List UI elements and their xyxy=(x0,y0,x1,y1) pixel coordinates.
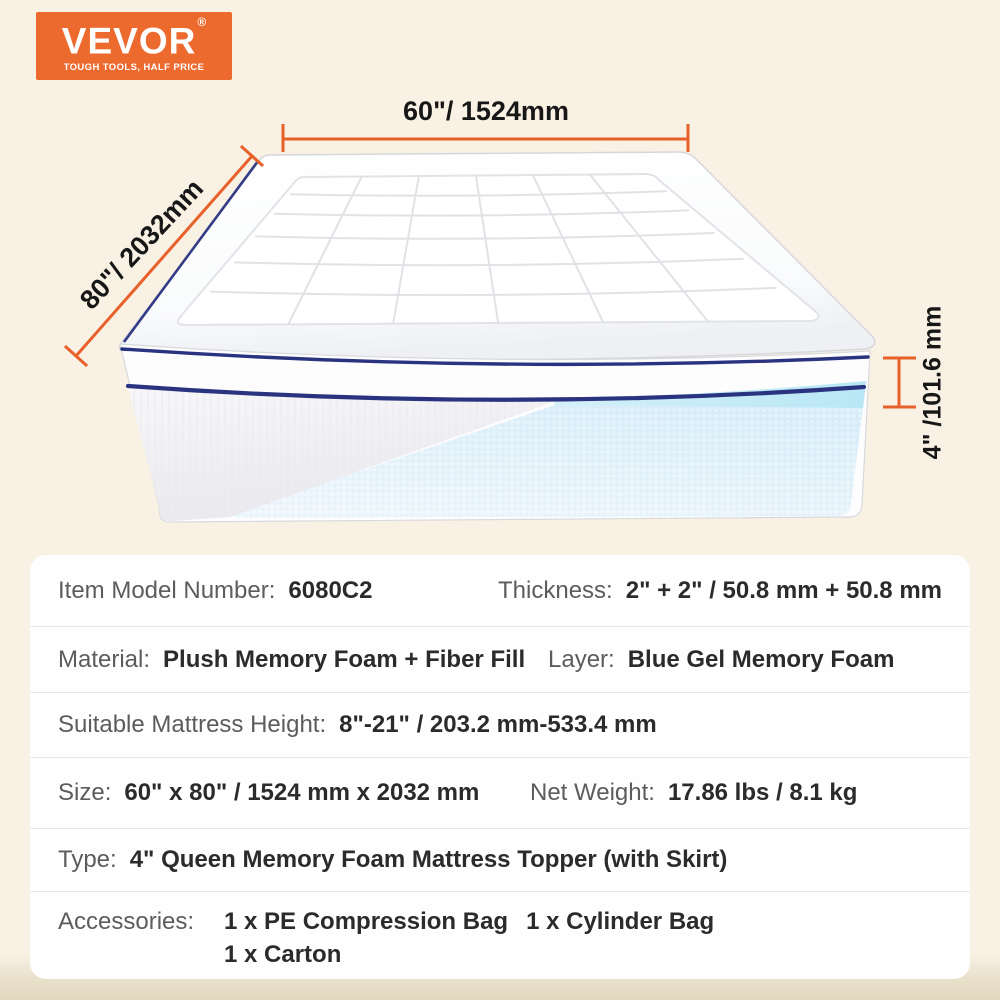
registered-mark: ® xyxy=(197,15,207,29)
spec-value: 17.86 lbs / 8.1 kg xyxy=(668,779,857,807)
spec-row-size-weight: Size: 60" x 80" / 1524 mm x 2032 mm Net … xyxy=(30,757,970,828)
spec-pair: Type: 4" Queen Memory Foam Mattress Topp… xyxy=(58,846,727,874)
product-infographic: VEVOR® TOUGH TOOLS, HALF PRICE xyxy=(0,0,1000,1000)
brand-tagline: TOUGH TOOLS, HALF PRICE xyxy=(64,62,205,73)
spec-row-type: Type: 4" Queen Memory Foam Mattress Topp… xyxy=(30,828,970,891)
spec-row-material-layer: Material: Plush Memory Foam + Fiber Fill… xyxy=(30,626,970,692)
spec-value: 6080C2 xyxy=(288,577,372,605)
accessories-line-2: 1 x Carton xyxy=(224,941,714,969)
spec-pair: Material: Plush Memory Foam + Fiber Fill xyxy=(58,646,548,674)
spec-label: Material: xyxy=(58,646,150,674)
spec-label: Accessories: xyxy=(58,908,224,936)
spec-pair: Net Weight: 17.86 lbs / 8.1 kg xyxy=(530,779,857,807)
spec-pair: Item Model Number: 6080C2 xyxy=(58,577,498,605)
spec-value: 4" Queen Memory Foam Mattress Topper (wi… xyxy=(130,846,728,874)
spec-value: 1 x PE Compression Bag xyxy=(224,908,508,936)
spec-value: Blue Gel Memory Foam xyxy=(628,646,895,674)
spec-label: Item Model Number: xyxy=(58,577,275,605)
spec-label: Net Weight: xyxy=(530,779,655,807)
spec-table: Item Model Number: 6080C2 Thickness: 2" … xyxy=(30,555,970,979)
spec-value: 8"-21" / 203.2 mm-533.4 mm xyxy=(339,711,657,739)
spec-row-mattress-height: Suitable Mattress Height: 8"-21" / 203.2… xyxy=(30,692,970,757)
spec-pair: Size: 60" x 80" / 1524 mm x 2032 mm xyxy=(58,779,530,807)
spec-label: Thickness: xyxy=(498,577,613,605)
width-dimension-line xyxy=(283,124,688,152)
height-dimension-label: 4" /101.6 mm xyxy=(919,243,948,523)
spec-label: Suitable Mattress Height: xyxy=(58,711,326,739)
spec-pair: Thickness: 2" + 2" / 50.8 mm + 50.8 mm xyxy=(498,577,942,605)
spec-pair: Layer: Blue Gel Memory Foam xyxy=(548,646,894,674)
accessories-line-1: 1 x PE Compression Bag 1 x Cylinder Bag xyxy=(224,908,714,936)
height-dimension-line xyxy=(883,358,916,407)
spec-value: 60" x 80" / 1524 mm x 2032 mm xyxy=(124,779,479,807)
spec-label: Type: xyxy=(58,846,117,874)
width-dimension-label: 60"/ 1524mm xyxy=(284,96,688,127)
spec-value: Plush Memory Foam + Fiber Fill xyxy=(163,646,525,674)
spec-row-model-thickness: Item Model Number: 6080C2 Thickness: 2" … xyxy=(30,555,970,626)
spec-value: 2" + 2" / 50.8 mm + 50.8 mm xyxy=(626,577,942,605)
spec-row-accessories: Accessories: 1 x PE Compression Bag 1 x … xyxy=(30,891,970,979)
spec-pair: Suitable Mattress Height: 8"-21" / 203.2… xyxy=(58,711,657,739)
spec-label: Layer: xyxy=(548,646,615,674)
brand-name: VEVOR® xyxy=(62,19,206,58)
accessories-values: 1 x PE Compression Bag 1 x Cylinder Bag … xyxy=(224,908,714,969)
mattress-illustration: 60"/ 1524mm 80"/ 2032mm 4" /101.6 mm xyxy=(0,0,1000,575)
vevor-logo: VEVOR® TOUGH TOOLS, HALF PRICE xyxy=(36,12,232,80)
mattress-diagram-svg xyxy=(0,0,1000,575)
spec-value: 1 x Carton xyxy=(224,941,341,969)
spec-label: Size: xyxy=(58,779,111,807)
spec-value: 1 x Cylinder Bag xyxy=(526,908,714,936)
